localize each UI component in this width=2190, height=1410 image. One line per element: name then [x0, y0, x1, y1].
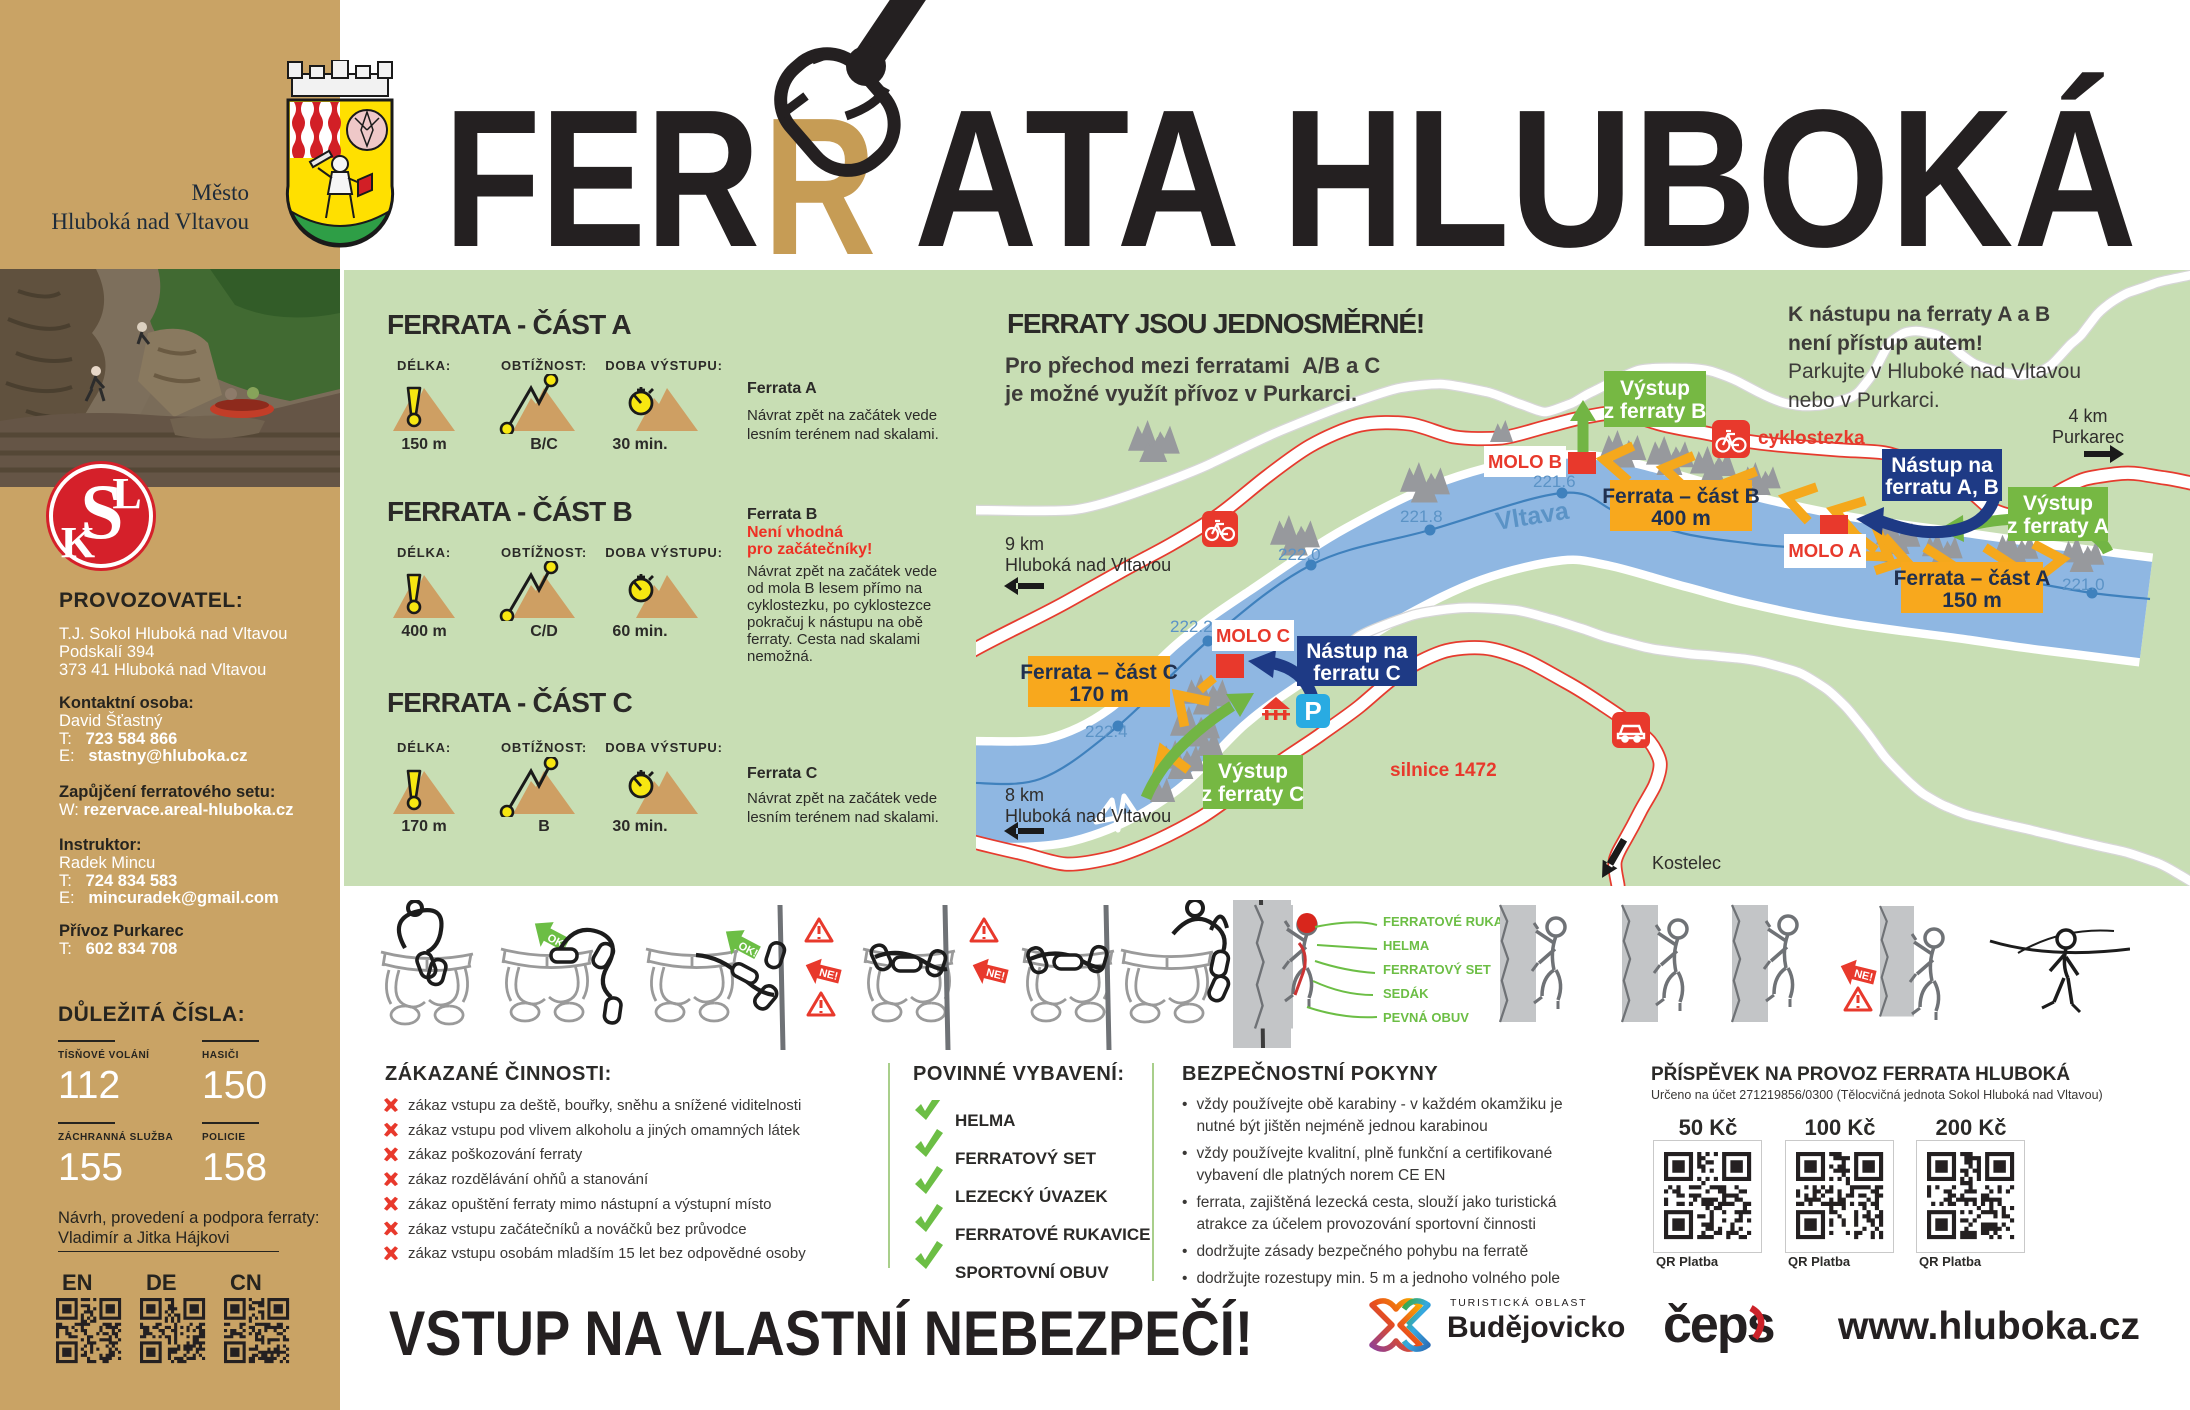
svg-text:ferratu C: ferratu C — [1313, 662, 1401, 685]
svg-text:L: L — [112, 469, 141, 518]
svg-text:Ferrata – část C: Ferrata – část C — [1020, 661, 1178, 684]
svg-text:čeps: čeps — [1663, 1296, 1774, 1354]
svg-text:HELMA: HELMA — [1383, 938, 1430, 953]
svg-text:221.0: 221.0 — [2062, 575, 2105, 594]
svg-text:400 m: 400 m — [1651, 507, 1711, 530]
svg-text:MOLO C: MOLO C — [1216, 625, 1290, 646]
svg-text:222.4: 222.4 — [1085, 722, 1128, 741]
svg-text:z ferraty B: z ferraty B — [1604, 400, 1707, 423]
svg-text:9 km: 9 km — [1005, 534, 1044, 554]
svg-text:Hluboká nad Vltavou: Hluboká nad Vltavou — [1005, 555, 1171, 575]
svg-text:150 m: 150 m — [1942, 589, 2002, 612]
svg-text:170 m: 170 m — [1069, 683, 1129, 706]
svg-text:silnice 1472: silnice 1472 — [1390, 760, 1497, 781]
svg-text:Ferrata – část B: Ferrata – část B — [1602, 485, 1760, 508]
svg-text:SEDÁK: SEDÁK — [1383, 986, 1429, 1001]
svg-text:Nástup na: Nástup na — [1891, 454, 1993, 477]
svg-text:QR Platba: QR Platba — [1788, 1254, 1851, 1269]
svg-text:221.6: 221.6 — [1533, 472, 1576, 491]
svg-text:MOLO B: MOLO B — [1488, 451, 1562, 472]
svg-text:QR Platba: QR Platba — [1919, 1254, 1982, 1269]
svg-text:222.2: 222.2 — [1170, 617, 1213, 636]
svg-text:z ferraty C: z ferraty C — [1202, 783, 1305, 806]
svg-text:PEVNÁ OBUV: PEVNÁ OBUV — [1383, 1010, 1469, 1025]
svg-text:Ferrata – část A: Ferrata – část A — [1894, 567, 2051, 590]
svg-text:Kostelec: Kostelec — [1652, 853, 1721, 873]
svg-text:Výstup: Výstup — [2023, 492, 2093, 515]
svg-text:Purkarec: Purkarec — [2052, 427, 2124, 447]
svg-text:QR Platba: QR Platba — [1656, 1254, 1719, 1269]
svg-text:MOLO A: MOLO A — [1788, 540, 1861, 561]
svg-text:Nástup na: Nástup na — [1306, 640, 1408, 663]
svg-text:cyklostezka: cyklostezka — [1758, 428, 1865, 449]
svg-text:z ferraty A: z ferraty A — [2007, 515, 2109, 538]
svg-text:Výstup: Výstup — [1620, 377, 1690, 400]
svg-text:ferratu A, B: ferratu A, B — [1885, 476, 1999, 499]
svg-text:222.0: 222.0 — [1278, 545, 1321, 564]
svg-text:Hluboká nad Vltavou: Hluboká nad Vltavou — [1005, 806, 1171, 826]
svg-text:8 km: 8 km — [1005, 785, 1044, 805]
svg-text:P: P — [1304, 696, 1321, 726]
svg-text:K: K — [61, 518, 95, 567]
svg-text:FERRATOVÝ SET: FERRATOVÝ SET — [1383, 962, 1491, 977]
svg-text:Výstup: Výstup — [1218, 760, 1288, 783]
svg-text:221.8: 221.8 — [1400, 507, 1443, 526]
